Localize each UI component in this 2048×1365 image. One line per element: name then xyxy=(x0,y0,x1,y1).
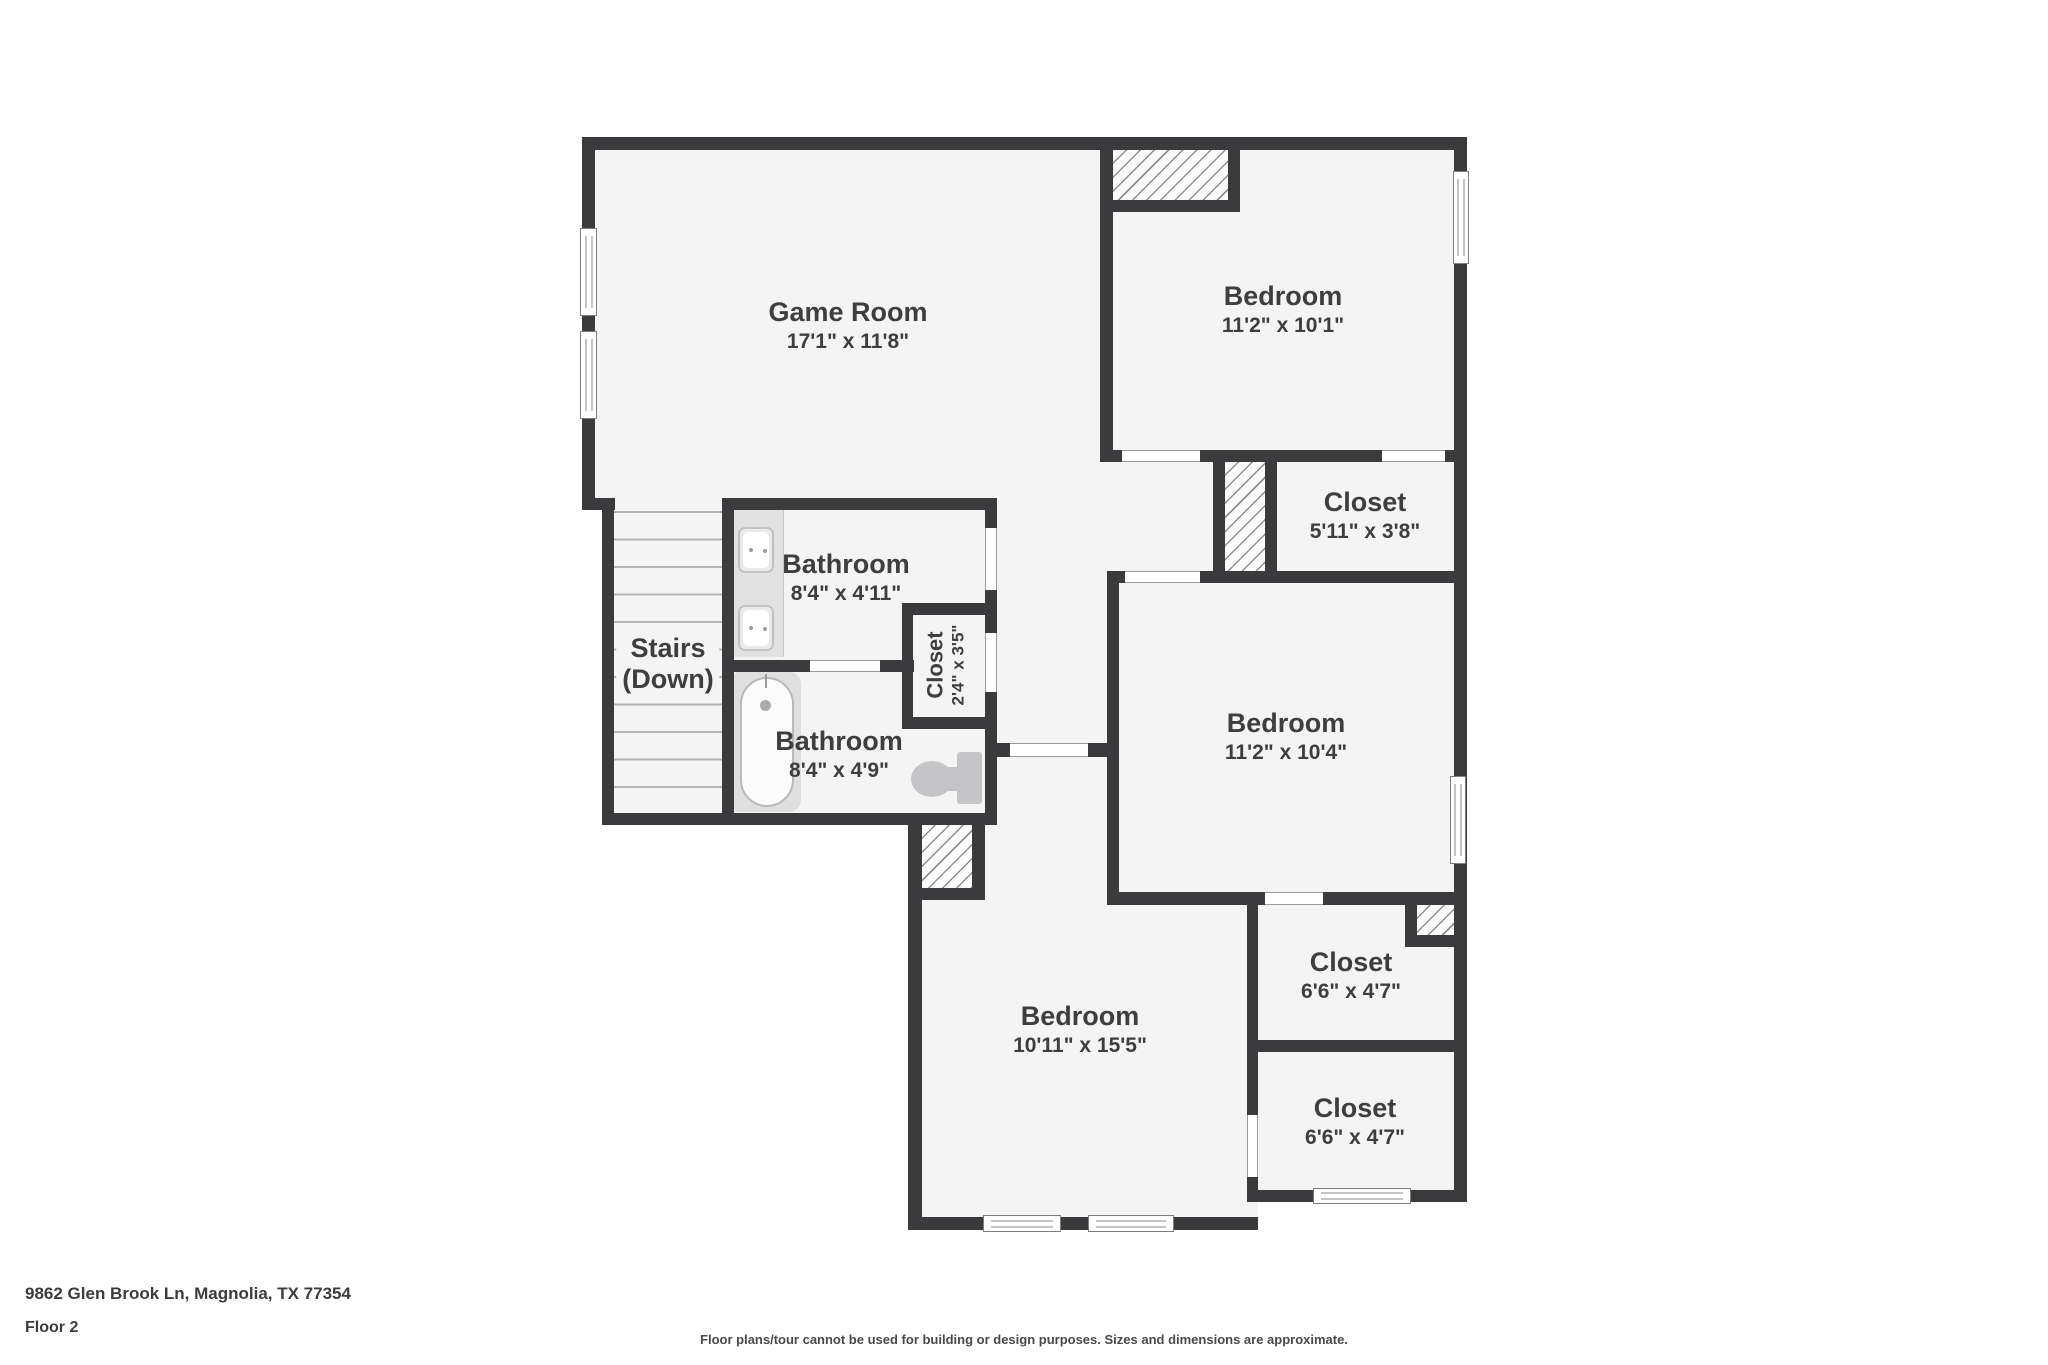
room-label-closet-right-lower: Closet 6'6" x 4'7" xyxy=(1305,1093,1405,1151)
sink-icon xyxy=(738,527,774,573)
floor-plan: Game Room 17'1" x 11'8" Bedroom 11'2" x … xyxy=(0,0,2048,1365)
door-opening xyxy=(1265,892,1323,905)
property-address: 9862 Glen Brook Ln, Magnolia, TX 77354 xyxy=(25,1284,351,1304)
door-opening xyxy=(1010,743,1088,757)
window-icon xyxy=(580,228,597,316)
wall xyxy=(602,813,997,825)
wall xyxy=(1213,452,1225,583)
room-label-closet-right-upper: Closet 6'6" x 4'7" xyxy=(1301,947,1401,1005)
room-label-bedroom-bottom: Bedroom 10'11" x 15'5" xyxy=(1013,1001,1147,1059)
toilet-icon xyxy=(911,761,953,797)
floor-footprint xyxy=(0,0,2048,1365)
room-dimensions: 11'2" x 10'1" xyxy=(1222,312,1344,339)
wall xyxy=(1247,1040,1467,1052)
wall xyxy=(902,603,997,615)
wall xyxy=(1113,200,1240,212)
sink-icon xyxy=(738,605,774,651)
room-dimensions: 2'4" x 3'5" xyxy=(948,625,970,706)
door-opening xyxy=(985,528,997,590)
room-label-bathroom-lower: Bathroom 8'4" x 4'9" xyxy=(775,726,903,784)
door-opening xyxy=(810,660,880,672)
window-icon xyxy=(580,331,597,419)
window-icon xyxy=(1313,1188,1411,1204)
wall xyxy=(722,498,997,510)
room-dimensions: (Down) xyxy=(622,664,713,695)
window-icon xyxy=(1088,1215,1174,1232)
wall xyxy=(908,1217,1258,1230)
room-label-game-room: Game Room 17'1" x 11'8" xyxy=(768,297,927,355)
room-label-closet-top: Closet 5'11" x 3'8" xyxy=(1310,487,1421,545)
window-icon xyxy=(1453,171,1469,264)
room-name: Closet xyxy=(1310,487,1421,518)
hatch-area xyxy=(1225,462,1265,571)
wall xyxy=(1228,147,1240,212)
wall xyxy=(722,498,734,825)
room-name: Stairs xyxy=(622,633,713,664)
door-opening xyxy=(1122,450,1200,462)
wall xyxy=(908,813,922,1230)
wall xyxy=(602,510,614,825)
room-dimensions: 8'4" x 4'11" xyxy=(782,580,910,607)
room-name: Bathroom xyxy=(775,726,903,757)
wall xyxy=(1107,571,1119,905)
door-opening xyxy=(985,633,997,692)
wall xyxy=(972,813,985,900)
room-label-closet-hall: Closet 2'4" x 3'5" xyxy=(922,625,969,706)
hatch-area xyxy=(1417,905,1454,935)
wall xyxy=(582,498,615,510)
wall xyxy=(902,603,913,729)
wall xyxy=(1405,935,1467,947)
door-opening xyxy=(1247,1115,1258,1177)
door-opening xyxy=(1382,450,1445,462)
room-label-stairs: Stairs (Down) xyxy=(616,633,719,695)
room-name: Closet xyxy=(922,625,947,706)
room-dimensions: 6'6" x 4'7" xyxy=(1305,1124,1405,1151)
room-name: Game Room xyxy=(768,297,927,328)
wall xyxy=(1100,137,1113,462)
room-name: Closet xyxy=(1305,1093,1405,1124)
room-label-bedroom-top: Bedroom 11'2" x 10'1" xyxy=(1222,281,1344,339)
room-label-bedroom-middle: Bedroom 11'2" x 10'4" xyxy=(1225,708,1347,766)
room-dimensions: 6'6" x 4'7" xyxy=(1301,978,1401,1005)
window-icon xyxy=(983,1215,1061,1232)
room-dimensions: 5'11" x 3'8" xyxy=(1310,518,1421,545)
room-name: Closet xyxy=(1301,947,1401,978)
floor-plan-page: Game Room 17'1" x 11'8" Bedroom 11'2" x … xyxy=(0,0,2048,1365)
bathtub-drain xyxy=(760,700,771,711)
wall xyxy=(1265,452,1277,583)
room-name: Bedroom xyxy=(1225,708,1347,739)
door-opening xyxy=(1125,571,1200,583)
room-name: Bedroom xyxy=(1013,1001,1147,1032)
wall xyxy=(908,888,985,900)
hatch-area xyxy=(1113,150,1228,200)
room-dimensions: 10'11" x 15'5" xyxy=(1013,1032,1147,1059)
room-name: Bathroom xyxy=(782,549,910,580)
room-dimensions: 11'2" x 10'4" xyxy=(1225,739,1347,766)
toilet-tank xyxy=(957,752,982,804)
hatch-area xyxy=(922,825,972,888)
disclaimer-text: Floor plans/tour cannot be used for buil… xyxy=(0,1332,2048,1347)
room-label-bathroom-upper: Bathroom 8'4" x 4'11" xyxy=(782,549,910,607)
room-name: Bedroom xyxy=(1222,281,1344,312)
window-icon xyxy=(1450,776,1466,864)
wall xyxy=(582,137,1467,150)
bathtub-faucet xyxy=(765,674,767,688)
wall xyxy=(582,137,595,510)
wall xyxy=(902,717,997,729)
room-dimensions: 8'4" x 4'9" xyxy=(775,757,903,784)
room-dimensions: 17'1" x 11'8" xyxy=(768,328,927,355)
